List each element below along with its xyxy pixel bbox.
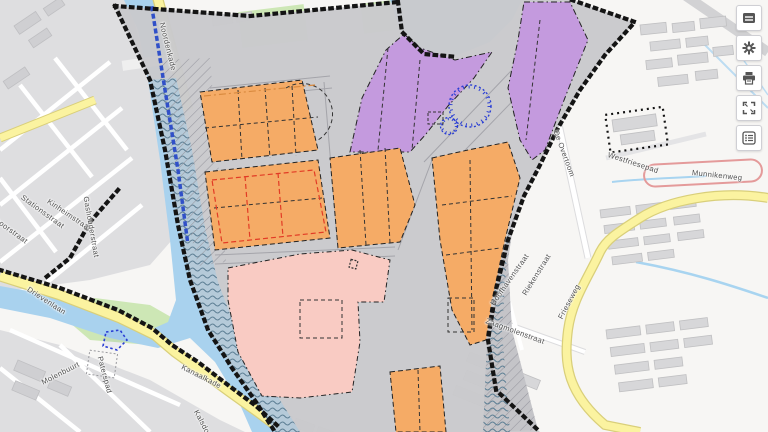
settings-button[interactable]: [736, 35, 762, 61]
layers-icon: [742, 11, 756, 25]
layers-button[interactable]: [736, 5, 762, 31]
print-button[interactable]: [736, 65, 762, 91]
fullscreen-icon: [742, 101, 756, 115]
gear-icon: [742, 41, 756, 55]
map-canvas[interactable]: Noordenkade Kinheimstraat Stationsstraat…: [0, 0, 768, 432]
legend-button[interactable]: [736, 125, 762, 151]
legend-icon: [742, 131, 756, 145]
map-toolbar: [736, 5, 762, 151]
fullscreen-button[interactable]: [736, 95, 762, 121]
printer-icon: [742, 71, 756, 85]
base-map-svg: [0, 0, 768, 432]
